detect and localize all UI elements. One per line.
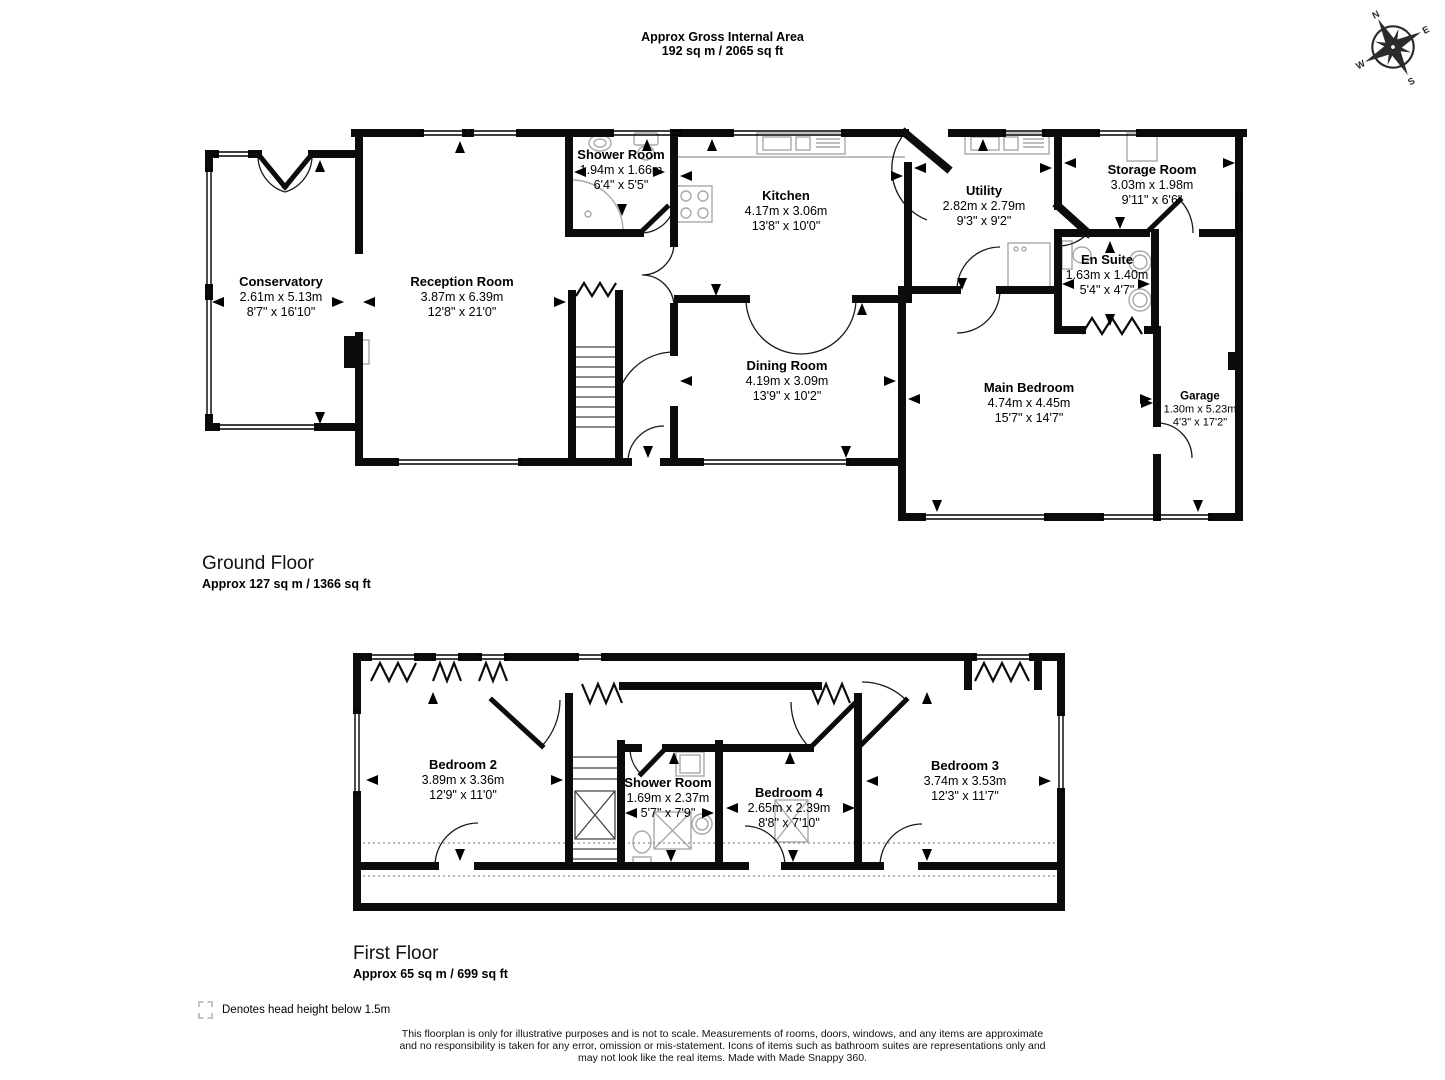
wall-pier [1228,352,1242,370]
toilet-icon [633,831,651,853]
room-label-shower-room-ff: Shower Room 1.69m x 2.37m 5'7" x 7'9" [624,775,711,821]
disclaimer: This floorplan is only for illustrative … [0,1028,1445,1064]
first-floor-area: Approx 65 sq m / 699 sq ft [353,967,508,981]
room-label-kitchen: Kitchen 4.17m x 3.06m 13'8" x 10'0" [745,188,828,234]
compass-west-label: W [1354,58,1367,72]
legend-text: Denotes head height below 1.5m [222,1004,390,1016]
room-label-bedroom-2: Bedroom 2 3.89m x 3.36m 12'9" x 11'0" [422,757,505,803]
room-label-main-bedroom: Main Bedroom 4.74m x 4.45m 15'7" x 14'7" [984,380,1074,426]
room-label-shower-room-gf: Shower Room 1.94m x 1.66m 6'4" x 5'5" [577,147,664,193]
room-label-bedroom-3: Bedroom 3 3.74m x 3.53m 12'3" x 11'7" [924,758,1007,804]
compass-north-label: N [1370,9,1381,22]
ground-floor-area: Approx 127 sq m / 1366 sq ft [202,577,371,591]
floorplan-page: Approx Gross Internal Area 192 sq m / 20… [0,0,1445,1080]
shower-drain-icon [585,211,591,217]
ground-floor-dimension-arrows [212,139,1235,512]
first-floor-stairs [573,757,619,859]
room-label-dining-room: Dining Room 4.19m x 3.09m 13'9" x 10'2" [746,358,829,404]
floorplan-drawing [0,0,1445,1080]
legend: Denotes head height below 1.5m [198,1001,390,1019]
head-height-lines [363,843,1057,876]
room-label-utility: Utility 2.82m x 2.79m 9'3" x 9'2" [943,183,1026,229]
ground-floor-plan [207,131,1243,519]
first-floor-title: First Floor [353,943,439,965]
compass-rose: N E S W [1350,4,1436,90]
room-label-conservatory: Conservatory 2.61m x 5.13m 8'7" x 16'10" [239,274,323,320]
room-label-bedroom-4: Bedroom 4 2.65m x 2.39m 8'8" x 7'10" [748,785,831,831]
ground-floor-stairs [574,347,617,427]
ground-floor-fixtures [361,133,1157,364]
compass-south-label: S [1406,76,1417,89]
room-label-reception-room: Reception Room 3.87m x 6.39m 12'8" x 21'… [410,274,513,320]
disclaimer-line-1: This floorplan is only for illustrative … [0,1028,1445,1040]
disclaimer-line-3: may not look like the real items. Made w… [0,1052,1445,1064]
wall-pier [344,336,362,368]
storage-unit-icon [1127,133,1157,161]
ground-floor-title: Ground Floor [202,553,314,575]
disclaimer-line-2: and no responsibility is taken for any e… [0,1040,1445,1052]
room-label-garage: Garage 1.30m x 5.23m 4'3" x 17'2" [1164,390,1237,431]
compass-east-label: E [1421,24,1432,37]
head-height-icon [198,1001,213,1019]
room-label-en-suite: En Suite 1.63m x 1.40m 5'4" x 4'7" [1066,252,1149,298]
room-label-storage-room: Storage Room 3.03m x 1.98m 9'11" x 6'6" [1108,162,1197,208]
